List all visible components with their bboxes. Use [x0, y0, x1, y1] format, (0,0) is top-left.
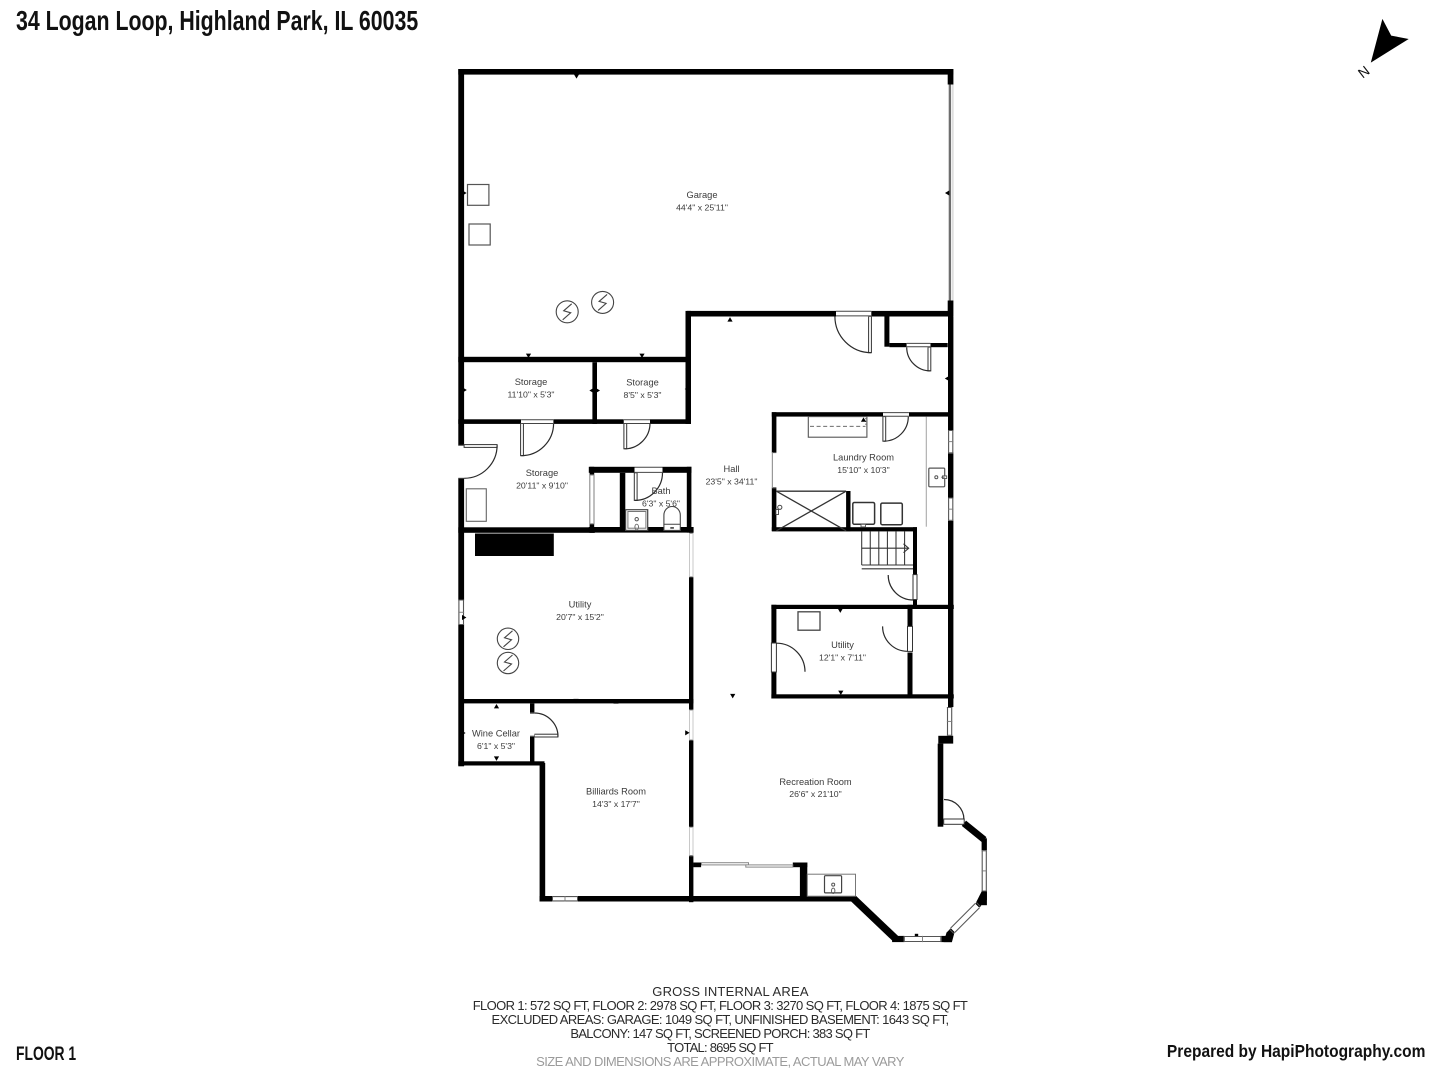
svg-text:20'7" x 15'2": 20'7" x 15'2" [556, 612, 604, 622]
svg-text:Garage: Garage [686, 190, 717, 200]
svg-text:Storage: Storage [626, 378, 659, 388]
svg-text:15'10" x 10'3": 15'10" x 10'3" [837, 465, 889, 475]
svg-text:6'3" x 5'6": 6'3" x 5'6" [642, 498, 680, 508]
svg-text:12'1" x 7'11": 12'1" x 7'11" [819, 652, 866, 662]
svg-text:11'10" x 5'3": 11'10" x 5'3" [508, 389, 555, 399]
svg-text:6'1" x 5'3": 6'1" x 5'3" [477, 741, 515, 751]
svg-text:26'6" x 21'10": 26'6" x 21'10" [789, 789, 841, 799]
svg-text:Recreation Room: Recreation Room [779, 777, 852, 787]
svg-text:Wine Cellar: Wine Cellar [472, 729, 520, 739]
svg-text:N: N [1355, 62, 1373, 81]
svg-text:Utility: Utility [831, 640, 854, 650]
svg-text:44'4" x 25'11": 44'4" x 25'11" [676, 202, 728, 212]
svg-text:Utility: Utility [569, 600, 592, 610]
svg-text:Hall: Hall [723, 464, 739, 474]
svg-text:14'3" x 17'7": 14'3" x 17'7" [592, 799, 640, 809]
svg-text:Laundry Room: Laundry Room [833, 453, 894, 463]
svg-text:Billiards Room: Billiards Room [586, 787, 646, 797]
svg-text:Storage: Storage [526, 468, 559, 478]
svg-text:Bath: Bath [651, 486, 670, 496]
svg-text:8'5" x 5'3": 8'5" x 5'3" [624, 390, 662, 400]
svg-text:20'11" x 9'10": 20'11" x 9'10" [516, 480, 568, 490]
svg-text:23'5" x 34'11": 23'5" x 34'11" [706, 476, 758, 486]
svg-text:Storage: Storage [515, 377, 548, 387]
